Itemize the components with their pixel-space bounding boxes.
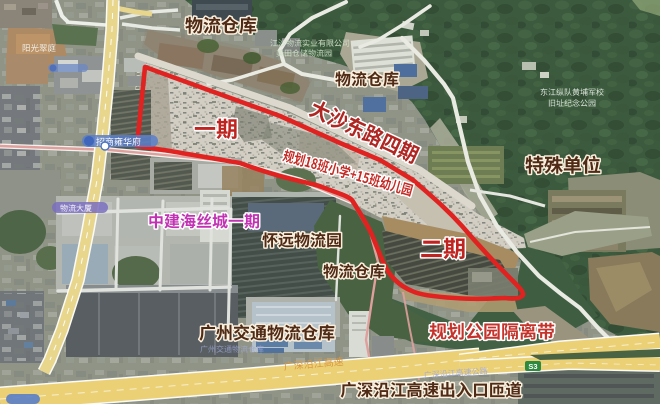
svg-text:S3: S3 — [528, 362, 537, 371]
